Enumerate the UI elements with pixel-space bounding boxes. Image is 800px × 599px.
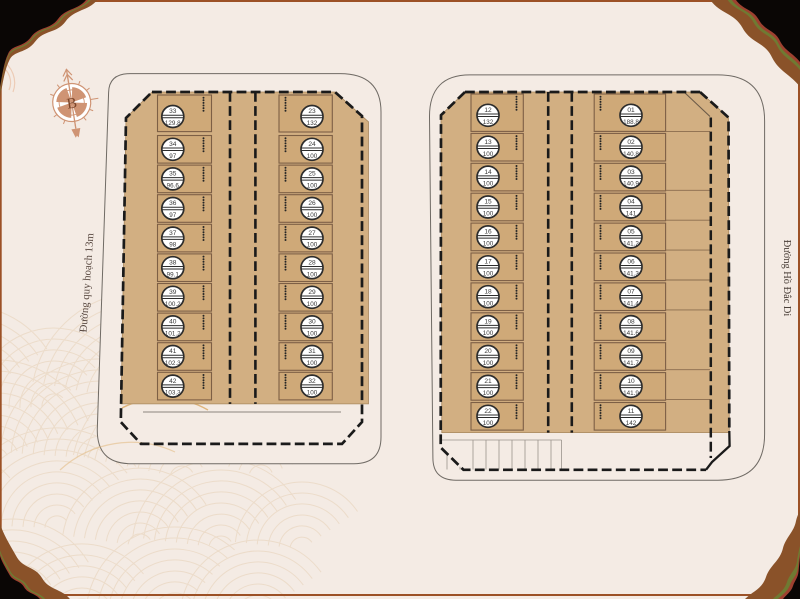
svg-text:17: 17	[484, 259, 492, 266]
svg-text:132: 132	[483, 119, 494, 126]
svg-text:11: 11	[628, 408, 635, 415]
svg-text:09: 09	[627, 348, 635, 355]
svg-text:08: 08	[627, 318, 635, 325]
svg-text:23: 23	[308, 108, 316, 115]
svg-text:22: 22	[484, 408, 492, 415]
svg-text:06: 06	[627, 259, 635, 266]
svg-text:100: 100	[483, 181, 494, 188]
svg-text:14: 14	[484, 169, 492, 176]
svg-text:96.6: 96.6	[167, 183, 180, 190]
svg-text:103.3: 103.3	[165, 390, 181, 397]
svg-text:37: 37	[169, 230, 177, 237]
svg-text:27: 27	[308, 230, 316, 237]
svg-text:100: 100	[483, 360, 494, 367]
svg-text:129.8: 129.8	[165, 120, 181, 127]
svg-text:15: 15	[484, 199, 492, 206]
svg-text:40: 40	[169, 319, 177, 326]
svg-text:141: 141	[626, 211, 637, 218]
svg-text:141.2: 141.2	[623, 241, 639, 248]
svg-text:100: 100	[483, 211, 494, 218]
svg-text:20: 20	[484, 348, 492, 355]
svg-text:97: 97	[169, 212, 177, 219]
svg-text:13: 13	[484, 139, 492, 146]
svg-text:18: 18	[484, 288, 492, 295]
svg-text:32: 32	[308, 378, 316, 385]
svg-text:98: 98	[169, 242, 177, 249]
svg-text:39: 39	[169, 289, 177, 296]
svg-text:141.3: 141.3	[623, 270, 639, 277]
svg-text:141.4: 141.4	[623, 300, 639, 307]
svg-text:02: 02	[627, 139, 635, 146]
svg-text:19: 19	[484, 318, 492, 325]
svg-text:33: 33	[169, 108, 177, 115]
svg-text:100: 100	[307, 301, 318, 308]
svg-text:100: 100	[307, 183, 318, 190]
svg-text:21: 21	[484, 378, 492, 385]
svg-text:10: 10	[627, 378, 635, 385]
svg-text:132: 132	[307, 120, 318, 127]
svg-text:36: 36	[169, 200, 177, 207]
svg-text:102.3: 102.3	[165, 360, 181, 367]
svg-text:100: 100	[483, 270, 494, 277]
svg-text:04: 04	[627, 199, 635, 206]
svg-text:100: 100	[483, 330, 494, 337]
svg-text:100.2: 100.2	[165, 301, 181, 308]
svg-text:05: 05	[627, 229, 635, 236]
svg-text:100: 100	[483, 420, 494, 427]
svg-text:100: 100	[307, 360, 318, 367]
svg-text:25: 25	[308, 171, 316, 178]
svg-text:99.1: 99.1	[167, 271, 180, 278]
svg-text:29: 29	[308, 289, 316, 296]
svg-text:42: 42	[169, 378, 177, 385]
svg-text:30: 30	[308, 319, 316, 326]
svg-text:141.9: 141.9	[623, 390, 639, 397]
svg-text:100: 100	[483, 241, 494, 248]
svg-text:100: 100	[483, 151, 494, 158]
svg-text:28: 28	[308, 259, 316, 266]
svg-text:100: 100	[307, 331, 318, 338]
svg-text:26: 26	[308, 200, 316, 207]
svg-text:100: 100	[483, 300, 494, 307]
svg-text:35: 35	[169, 171, 177, 178]
svg-text:34: 34	[169, 141, 177, 148]
svg-text:100: 100	[307, 390, 318, 397]
svg-text:100: 100	[307, 242, 318, 249]
svg-text:97: 97	[169, 153, 177, 160]
svg-text:140.9: 140.9	[623, 181, 639, 188]
svg-text:100: 100	[483, 390, 494, 397]
svg-text:141.6: 141.6	[623, 330, 639, 337]
svg-text:100: 100	[307, 271, 318, 278]
svg-text:24: 24	[308, 141, 316, 148]
svg-text:100: 100	[307, 153, 318, 160]
svg-text:141.7: 141.7	[623, 360, 639, 367]
svg-text:03: 03	[627, 169, 635, 176]
svg-text:188.8: 188.8	[623, 119, 639, 126]
svg-text:140.8: 140.8	[623, 151, 639, 158]
svg-text:07: 07	[627, 288, 635, 295]
svg-text:31: 31	[308, 348, 316, 355]
svg-text:38: 38	[169, 259, 177, 266]
svg-text:Đường Hồ Đắc Di: Đường Hồ Đắc Di	[781, 240, 792, 317]
svg-text:01: 01	[627, 107, 635, 114]
svg-text:101.2: 101.2	[165, 331, 181, 338]
svg-text:142: 142	[626, 420, 637, 427]
svg-text:41: 41	[169, 348, 177, 355]
svg-text:12: 12	[484, 107, 492, 114]
svg-text:100: 100	[307, 212, 318, 219]
svg-text:16: 16	[484, 229, 492, 236]
